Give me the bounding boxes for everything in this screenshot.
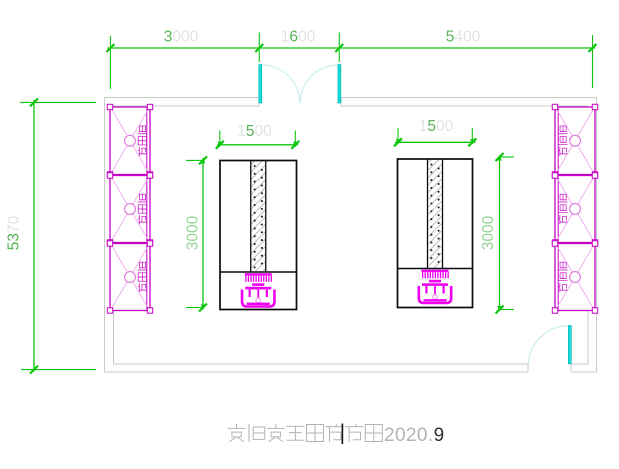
svg-text:3000: 3000: [185, 215, 202, 250]
svg-text:5370: 5370: [6, 215, 23, 250]
svg-text:1500: 1500: [419, 118, 454, 135]
svg-text:3000: 3000: [480, 215, 497, 250]
svg-text:1500: 1500: [237, 123, 272, 140]
svg-text:1600: 1600: [281, 29, 316, 46]
svg-text:2020.9: 2020.9: [384, 425, 445, 446]
svg-text:5400: 5400: [446, 29, 481, 46]
svg-text:3000: 3000: [164, 29, 199, 46]
